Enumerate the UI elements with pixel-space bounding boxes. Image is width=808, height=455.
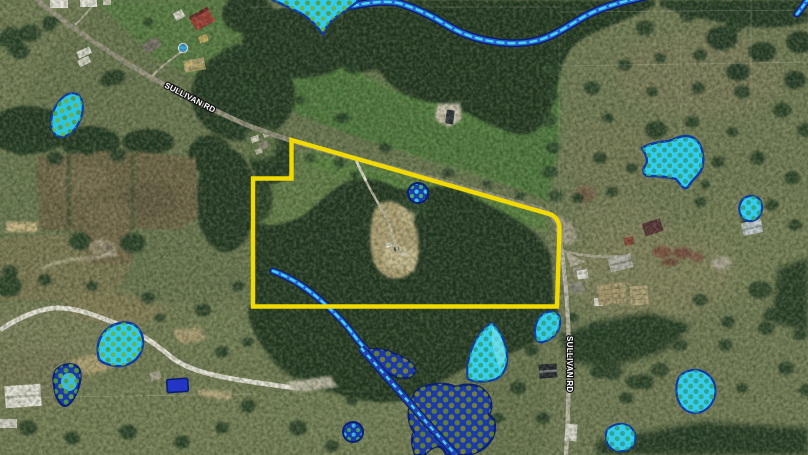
svg-text:SULLIVAN RD: SULLIVAN RD: [565, 336, 574, 392]
